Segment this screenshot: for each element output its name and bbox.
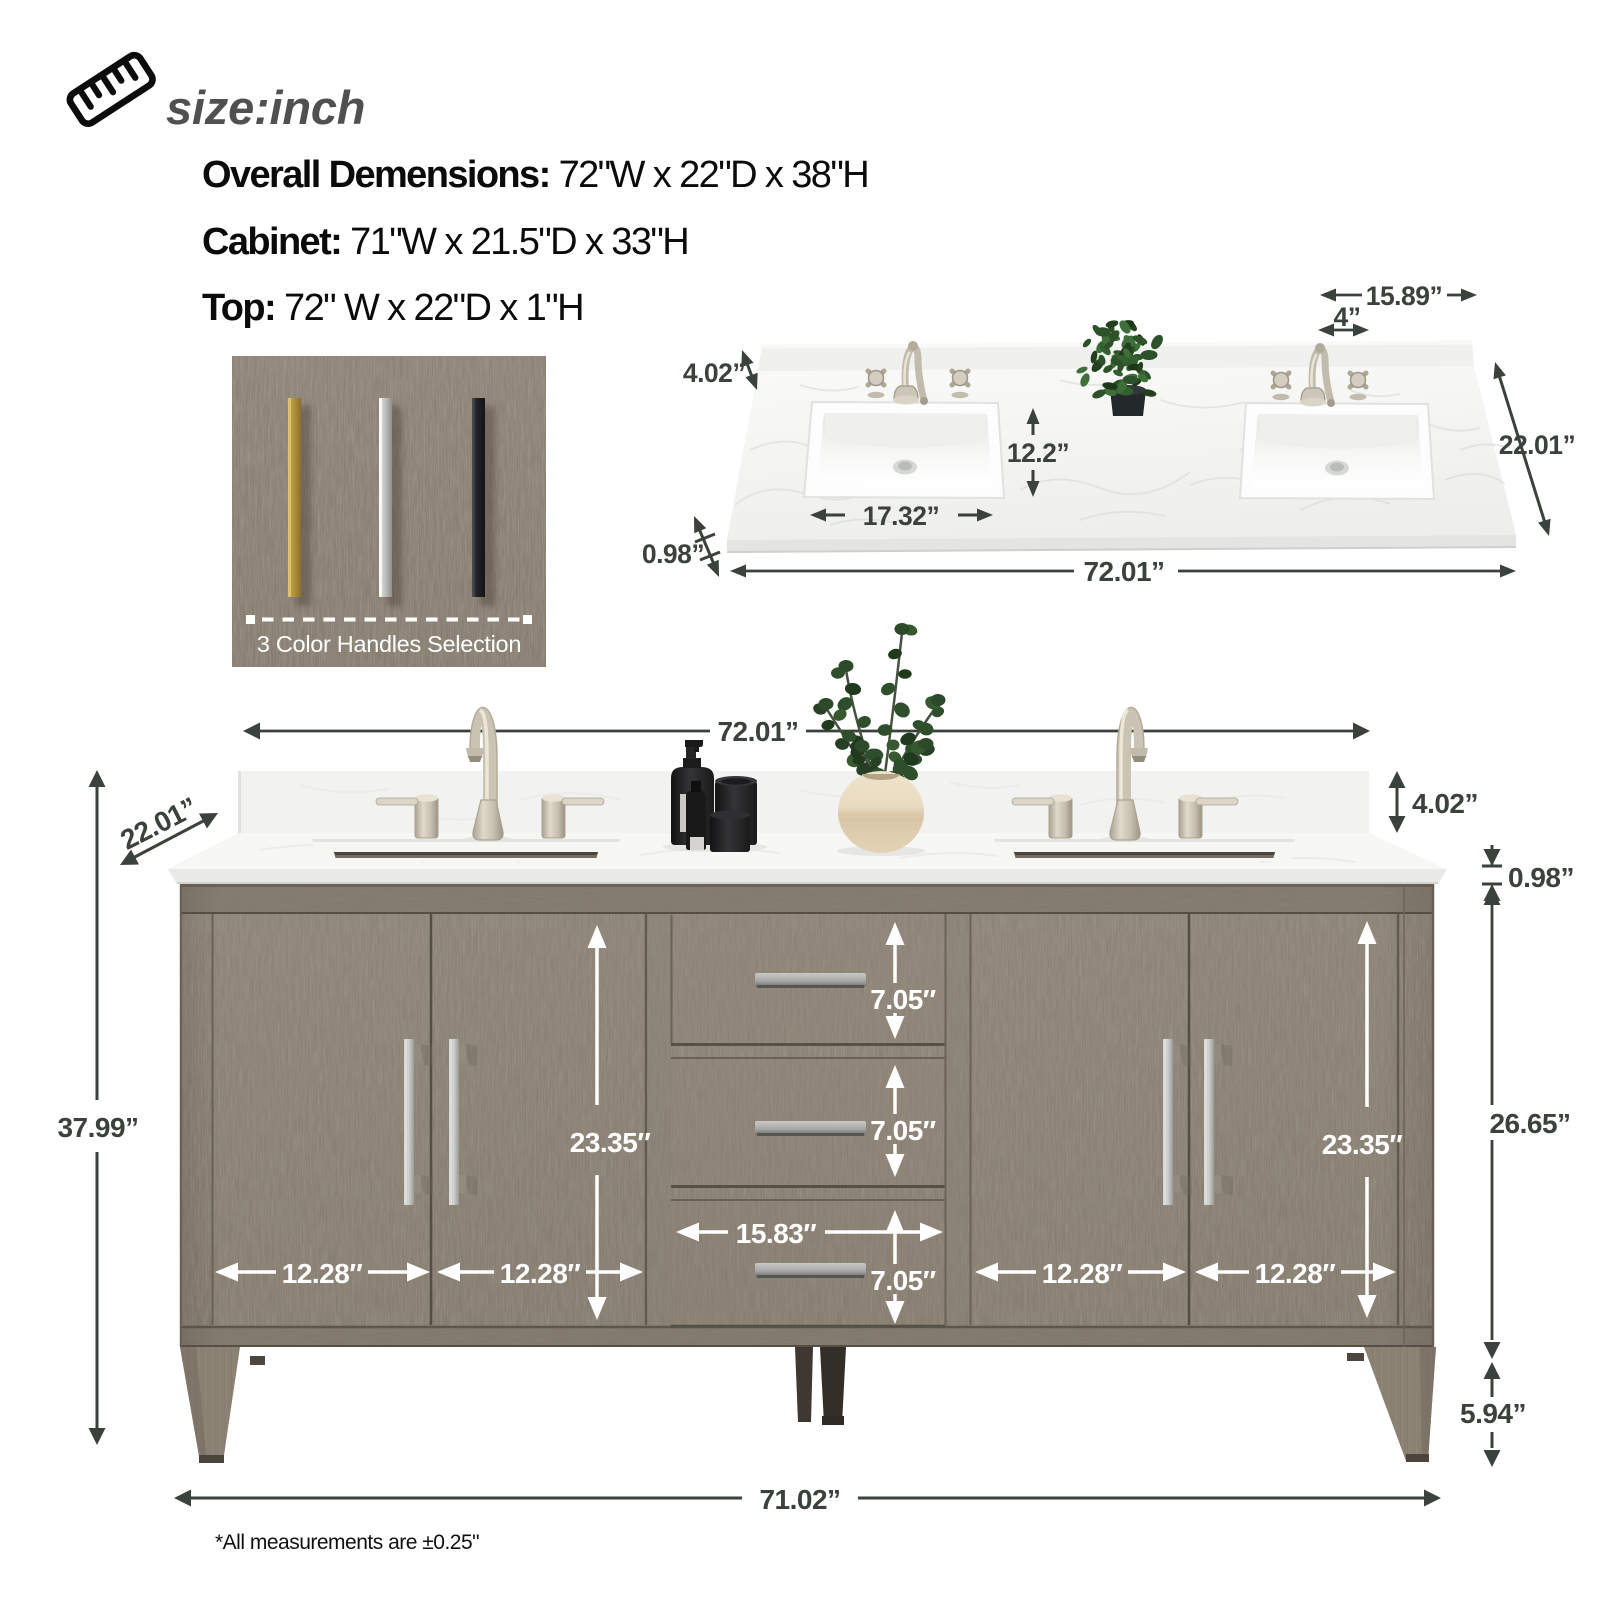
svg-text:12.28″: 12.28″: [1042, 1258, 1123, 1289]
svg-text:12.28″: 12.28″: [1255, 1258, 1336, 1289]
svg-text:17.32”: 17.32”: [863, 501, 940, 531]
svg-text:7.05″: 7.05″: [870, 1265, 935, 1296]
svg-text:7.05″: 7.05″: [870, 1115, 935, 1146]
svg-text:37.99”: 37.99”: [57, 1112, 138, 1143]
svg-text:0.98”: 0.98”: [642, 539, 704, 569]
svg-text:15.83″: 15.83″: [736, 1218, 817, 1249]
svg-text:23.35″: 23.35″: [570, 1127, 651, 1158]
svg-text:7.05″: 7.05″: [870, 984, 935, 1015]
svg-text:0.98”: 0.98”: [1508, 862, 1574, 893]
svg-text:5.94”: 5.94”: [1460, 1398, 1526, 1429]
svg-text:12.28″: 12.28″: [282, 1258, 363, 1289]
svg-text:22.01”: 22.01”: [1499, 430, 1576, 460]
svg-text:23.35″: 23.35″: [1322, 1129, 1403, 1160]
svg-text:12.28″: 12.28″: [500, 1258, 581, 1289]
svg-text:26.65”: 26.65”: [1489, 1108, 1570, 1139]
svg-text:72.01”: 72.01”: [1083, 556, 1164, 587]
svg-text:4.02”: 4.02”: [683, 358, 745, 388]
svg-text:72.01”: 72.01”: [717, 716, 798, 747]
svg-text:15.89”: 15.89”: [1366, 281, 1443, 311]
svg-text:71.02”: 71.02”: [759, 1484, 840, 1515]
svg-text:12.2”: 12.2”: [1007, 438, 1069, 468]
svg-text:4.02”: 4.02”: [1412, 788, 1478, 819]
